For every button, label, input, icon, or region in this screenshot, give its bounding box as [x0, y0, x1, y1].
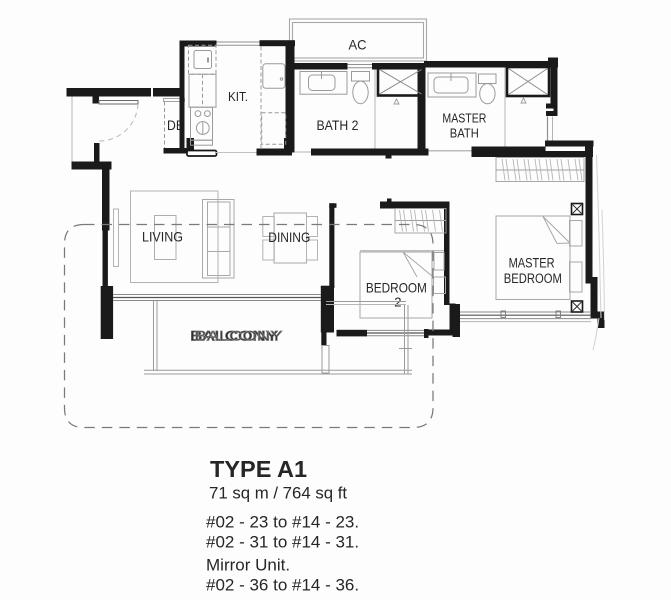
svg-text:#02 - 23 to #14 - 23.: #02 - 23 to #14 - 23. — [206, 513, 359, 532]
svg-text:#02 - 36 to #14 - 36.: #02 - 36 to #14 - 36. — [206, 576, 359, 595]
svg-text:AC: AC — [349, 37, 367, 53]
svg-text:MASTER: MASTER — [442, 110, 486, 125]
svg-text:KIT.: KIT. — [228, 89, 248, 104]
svg-text:TYPE A1: TYPE A1 — [210, 456, 307, 482]
svg-text:71 sq m / 764 sq ft: 71 sq m / 764 sq ft — [209, 484, 347, 503]
svg-text:MASTER: MASTER — [509, 256, 555, 271]
svg-text:BALCONY: BALCONY — [195, 329, 283, 344]
svg-text:Mirror Unit.: Mirror Unit. — [206, 556, 290, 575]
svg-text:LIVING: LIVING — [142, 229, 183, 245]
svg-text:BATH 2: BATH 2 — [317, 117, 359, 133]
svg-text:BEDROOM: BEDROOM — [366, 280, 427, 296]
svg-text:DINING: DINING — [268, 229, 310, 245]
svg-text:BEDROOM: BEDROOM — [504, 271, 562, 286]
svg-text:BATH: BATH — [450, 126, 479, 141]
svg-text:#02 - 31 to #14 - 31.: #02 - 31 to #14 - 31. — [206, 533, 359, 552]
